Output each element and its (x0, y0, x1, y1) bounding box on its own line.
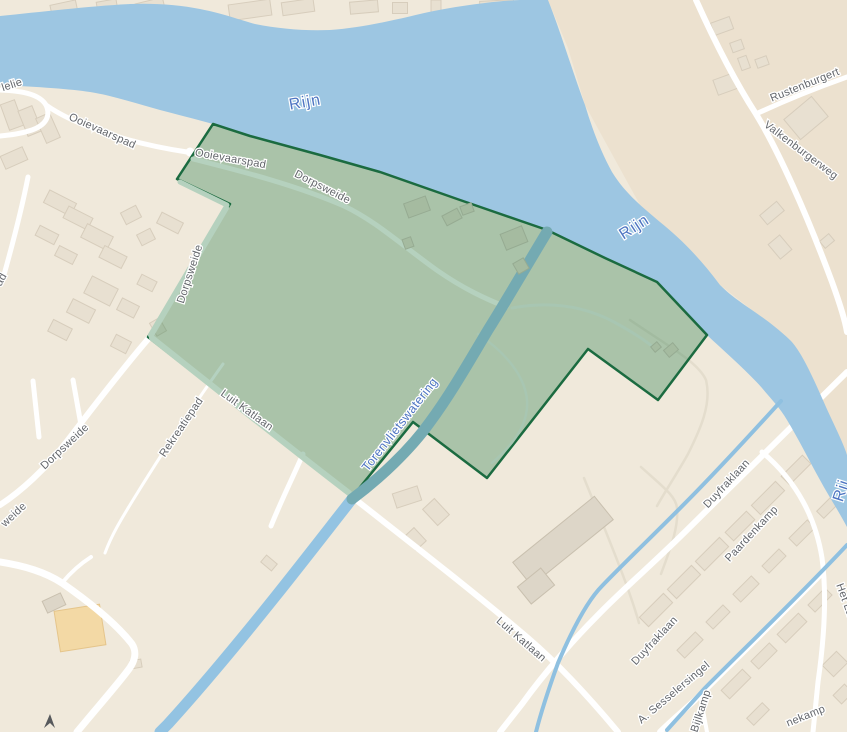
map-canvas[interactable]: lelie Ooievaarspad Ooievaarspad Dorpswei… (0, 0, 847, 732)
